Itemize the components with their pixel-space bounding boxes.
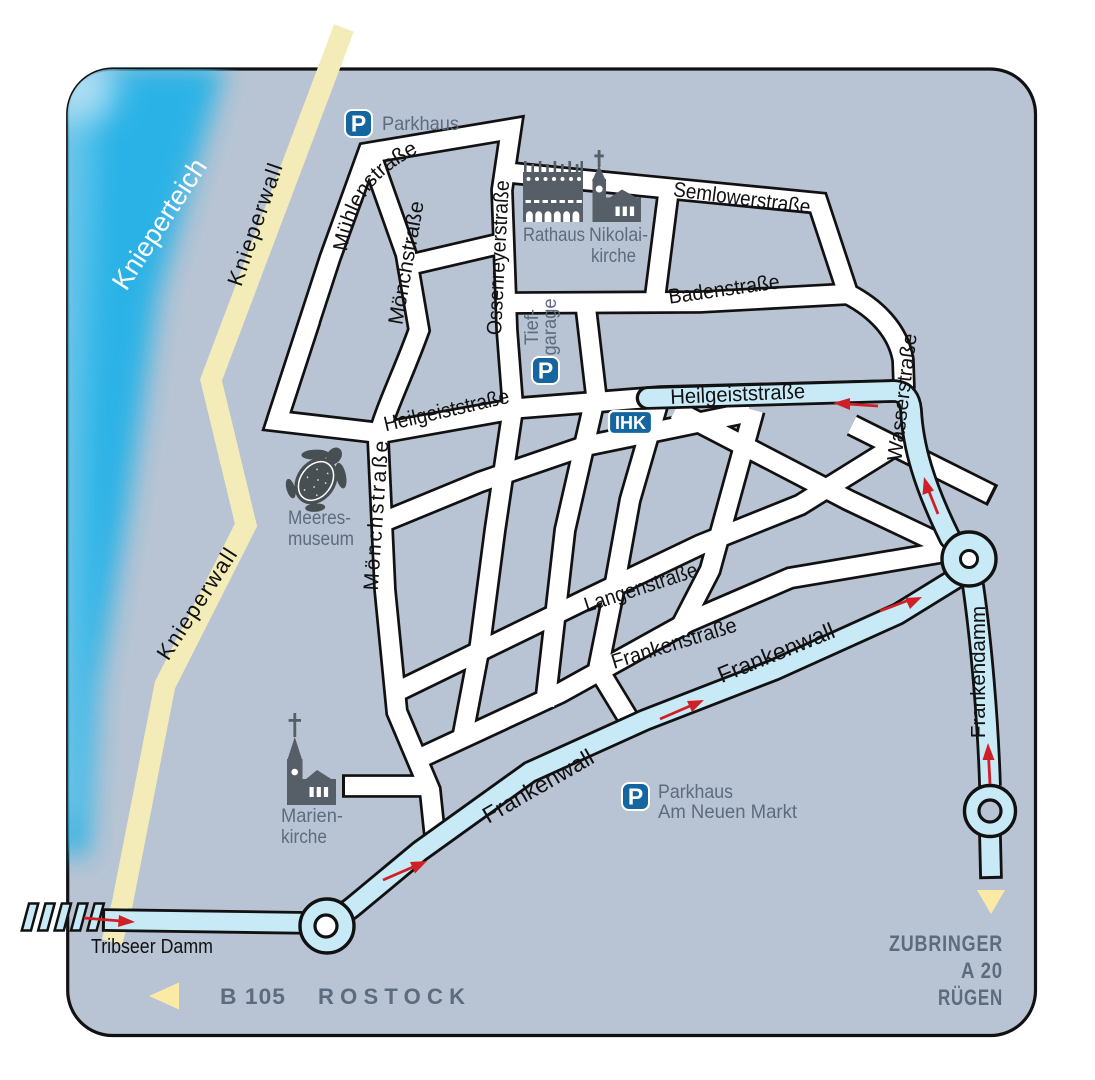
svg-text:RÜGEN: RÜGEN [938, 985, 1003, 1010]
svg-text:kirche: kirche [591, 245, 636, 267]
svg-text:Nikolai-: Nikolai- [589, 224, 648, 246]
svg-text:Meeres-: Meeres- [288, 507, 351, 529]
svg-text:Parkhaus: Parkhaus [658, 781, 733, 803]
svg-text:Parkhaus: Parkhaus [382, 113, 459, 135]
svg-text:ROSTOCK: ROSTOCK [318, 984, 466, 1009]
svg-text:P: P [351, 111, 366, 137]
svg-text:Marien-: Marien- [281, 805, 343, 827]
svg-text:A 20: A 20 [961, 958, 1003, 983]
svg-text:museum: museum [288, 528, 354, 550]
svg-text:B 105: B 105 [220, 984, 286, 1009]
svg-text:kirche: kirche [281, 826, 327, 848]
svg-text:Am Neuen Markt: Am Neuen Markt [658, 801, 798, 823]
svg-text:garage: garage [539, 299, 561, 356]
svg-text:Tribseer Damm: Tribseer Damm [91, 936, 213, 958]
svg-text:Frankendamm: Frankendamm [967, 606, 990, 738]
svg-text:Rathaus: Rathaus [523, 224, 585, 246]
svg-text:IHK: IHK [615, 413, 646, 433]
svg-text:ZUBRINGER: ZUBRINGER [889, 931, 1003, 956]
svg-text:P: P [538, 358, 553, 384]
svg-text:P: P [628, 784, 643, 810]
